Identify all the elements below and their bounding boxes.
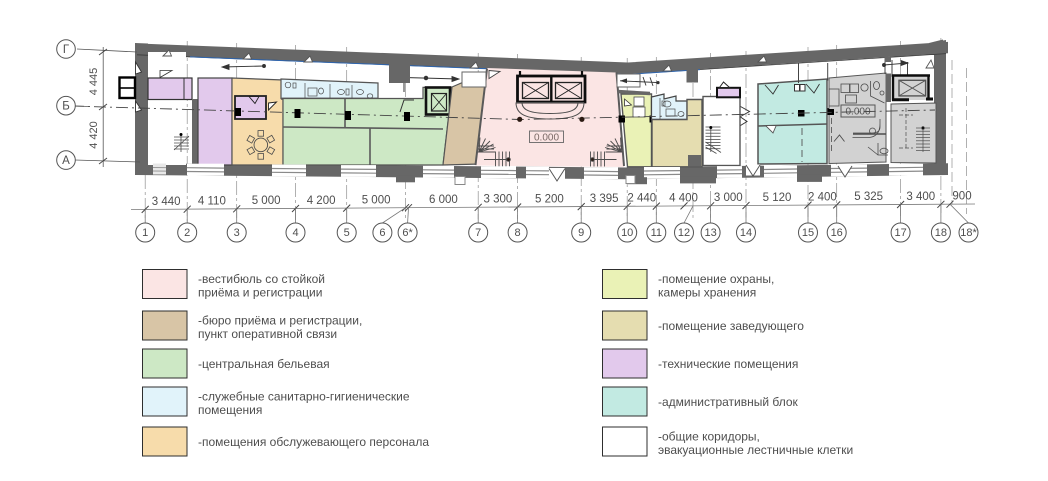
svg-text:15: 15 <box>802 227 814 239</box>
svg-text:8: 8 <box>515 227 521 239</box>
svg-text:-центральная бельевая: -центральная бельевая <box>198 357 330 371</box>
svg-text:эвакуационные лестничные клетк: эвакуационные лестничные клетки <box>658 443 853 457</box>
svg-text:11: 11 <box>651 227 662 239</box>
svg-text:0.000: 0.000 <box>534 132 559 143</box>
svg-text:4 110: 4 110 <box>198 196 226 208</box>
svg-text:-технические помещения: -технические помещения <box>658 357 798 371</box>
svg-text:17: 17 <box>894 227 906 239</box>
svg-text:5 200: 5 200 <box>535 193 564 205</box>
svg-text:2 440: 2 440 <box>627 193 656 205</box>
svg-text:4 420: 4 420 <box>88 121 100 149</box>
svg-text:-служебные санитарно-гигиениче: -служебные санитарно-гигиенические <box>198 390 410 404</box>
svg-text:-помещение заведующего: -помещение заведующего <box>658 319 804 333</box>
svg-text:-общие коридоры,: -общие коридоры, <box>658 430 760 444</box>
svg-text:-бюро приёма и регистрации,: -бюро приёма и регистрации, <box>198 314 362 328</box>
svg-text:9: 9 <box>578 227 584 239</box>
svg-text:6: 6 <box>379 227 385 239</box>
svg-text:5 325: 5 325 <box>854 191 883 203</box>
svg-text:4 400: 4 400 <box>669 192 698 204</box>
svg-text:6*: 6* <box>402 227 413 239</box>
svg-text:5 120: 5 120 <box>763 192 792 204</box>
svg-text:1: 1 <box>142 227 148 239</box>
svg-text:-административный блок: -административный блок <box>658 395 799 409</box>
svg-text:5: 5 <box>344 227 350 239</box>
svg-text:18*: 18* <box>960 227 977 239</box>
svg-text:-вестибюль со стойкой: -вестибюль со стойкой <box>198 272 325 286</box>
svg-text:3: 3 <box>234 227 240 239</box>
svg-text:-помещения обслужевающего перс: -помещения обслужевающего персонала <box>198 435 429 449</box>
svg-text:3 400: 3 400 <box>906 191 935 203</box>
svg-text:А: А <box>62 155 70 167</box>
svg-text:14: 14 <box>740 227 752 239</box>
svg-text:камеры хранения: камеры хранения <box>658 286 756 300</box>
svg-text:13: 13 <box>704 227 716 239</box>
svg-text:Г: Г <box>63 44 70 56</box>
svg-text:пункт оперативной связи: пункт оперативной связи <box>198 327 337 341</box>
svg-text:18: 18 <box>935 227 947 239</box>
svg-text:4 200: 4 200 <box>307 195 336 207</box>
svg-text:900: 900 <box>952 191 971 203</box>
svg-text:12: 12 <box>678 227 690 239</box>
svg-text:3 395: 3 395 <box>590 193 619 205</box>
svg-text:помещения: помещения <box>198 403 262 417</box>
svg-text:16: 16 <box>831 227 843 239</box>
svg-text:5 000: 5 000 <box>362 194 391 206</box>
svg-text:2: 2 <box>184 227 190 239</box>
svg-text:3 000: 3 000 <box>714 192 743 204</box>
svg-text:10: 10 <box>621 227 633 239</box>
svg-text:6 000: 6 000 <box>429 194 458 206</box>
svg-text:4 445: 4 445 <box>88 68 100 96</box>
svg-text:приёма и регистрации: приёма и регистрации <box>198 286 322 300</box>
svg-text:Б: Б <box>62 101 70 113</box>
svg-text:7: 7 <box>475 227 481 239</box>
svg-text:3 300: 3 300 <box>484 194 513 206</box>
svg-text:5 000: 5 000 <box>252 195 281 207</box>
svg-text:3 440: 3 440 <box>152 196 181 208</box>
svg-text:2 400: 2 400 <box>808 192 837 204</box>
svg-text:4: 4 <box>292 227 298 239</box>
svg-text:-помещение охраны,: -помещение охраны, <box>658 272 774 286</box>
